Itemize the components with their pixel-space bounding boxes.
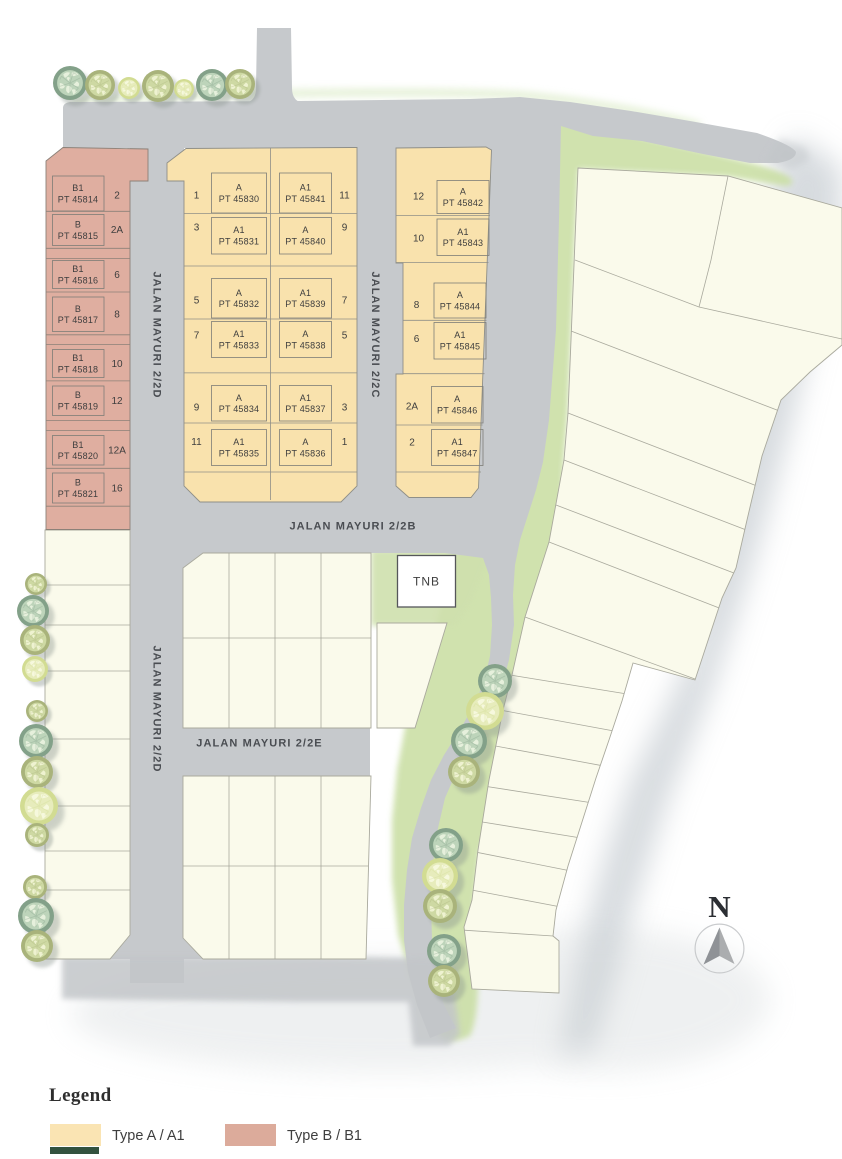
svg-text:B: B (75, 304, 81, 314)
svg-text:10: 10 (111, 359, 123, 370)
svg-text:10: 10 (413, 234, 425, 245)
svg-text:PT 45815: PT 45815 (58, 231, 98, 241)
svg-text:B1: B1 (72, 264, 83, 274)
svg-text:A1: A1 (457, 227, 468, 237)
svg-text:PT 45846: PT 45846 (437, 406, 477, 416)
svg-text:B1: B1 (72, 440, 83, 450)
svg-text:PT 45847: PT 45847 (437, 448, 477, 458)
svg-text:A1: A1 (300, 288, 311, 298)
svg-text:12: 12 (413, 192, 425, 203)
svg-text:2: 2 (114, 191, 120, 202)
svg-text:B: B (75, 478, 81, 488)
svg-text:PT 45814: PT 45814 (58, 194, 98, 204)
svg-text:3: 3 (194, 223, 200, 234)
svg-text:PT 45830: PT 45830 (219, 194, 259, 204)
svg-text:PT 45819: PT 45819 (58, 402, 98, 412)
svg-text:PT 45831: PT 45831 (219, 237, 259, 247)
svg-text:PT 45843: PT 45843 (443, 238, 483, 248)
svg-text:9: 9 (342, 223, 348, 234)
svg-text:A: A (302, 329, 308, 339)
svg-text:PT 45837: PT 45837 (285, 404, 325, 414)
svg-text:PT 45838: PT 45838 (285, 340, 325, 350)
svg-text:5: 5 (342, 331, 348, 342)
svg-text:Type B / B1: Type B / B1 (287, 1128, 362, 1144)
svg-text:2: 2 (409, 438, 415, 449)
svg-text:PT 45836: PT 45836 (285, 448, 325, 458)
svg-text:12: 12 (111, 396, 123, 407)
svg-text:JALAN MAYURI 2/2C: JALAN MAYURI 2/2C (369, 271, 381, 398)
svg-text:JALAN MAYURI 2/2D: JALAN MAYURI 2/2D (151, 645, 163, 772)
svg-text:5: 5 (194, 296, 200, 307)
svg-text:A: A (236, 288, 242, 298)
svg-text:JALAN MAYURI 2/2B: JALAN MAYURI 2/2B (289, 521, 416, 533)
svg-text:PT 45820: PT 45820 (58, 451, 98, 461)
svg-text:PT 45821: PT 45821 (58, 489, 98, 499)
svg-text:B: B (75, 220, 81, 230)
svg-text:A1: A1 (233, 225, 244, 235)
svg-text:2A: 2A (406, 401, 419, 412)
svg-text:A: A (460, 187, 466, 197)
svg-text:PT 45840: PT 45840 (285, 237, 325, 247)
svg-text:6: 6 (414, 334, 420, 345)
svg-text:7: 7 (194, 331, 200, 342)
svg-text:B1: B1 (72, 353, 83, 363)
svg-text:9: 9 (194, 403, 200, 414)
svg-text:8: 8 (114, 310, 120, 321)
svg-text:A: A (454, 394, 460, 404)
svg-text:Type A / A1: Type A / A1 (112, 1128, 185, 1144)
svg-text:Legend: Legend (49, 1085, 112, 1106)
svg-text:7: 7 (342, 296, 348, 307)
svg-text:A1: A1 (300, 393, 311, 403)
svg-text:A: A (236, 183, 242, 193)
svg-text:16: 16 (111, 484, 123, 495)
svg-text:PT 45839: PT 45839 (285, 299, 325, 309)
svg-text:PT 45841: PT 45841 (285, 194, 325, 204)
svg-text:A: A (457, 290, 463, 300)
svg-text:1: 1 (194, 191, 200, 202)
svg-text:JALAN MAYURI 2/2D: JALAN MAYURI 2/2D (151, 271, 163, 398)
svg-text:A: A (302, 225, 308, 235)
svg-text:TNB: TNB (413, 575, 440, 589)
svg-text:PT 45834: PT 45834 (219, 404, 259, 414)
svg-text:PT 45845: PT 45845 (440, 342, 480, 352)
svg-text:JALAN MAYURI 2/2E: JALAN MAYURI 2/2E (196, 738, 323, 750)
svg-text:3: 3 (342, 403, 348, 414)
svg-text:6: 6 (114, 270, 120, 281)
svg-text:N: N (708, 889, 730, 924)
svg-text:B1: B1 (72, 183, 83, 193)
svg-text:A1: A1 (454, 330, 465, 340)
svg-text:PT 45816: PT 45816 (58, 275, 98, 285)
svg-text:1: 1 (342, 437, 348, 448)
svg-text:2A: 2A (111, 225, 124, 236)
svg-text:PT 45832: PT 45832 (219, 299, 259, 309)
svg-text:PT 45833: PT 45833 (219, 340, 259, 350)
svg-text:8: 8 (414, 300, 420, 311)
svg-text:A: A (236, 393, 242, 403)
svg-text:A1: A1 (233, 437, 244, 447)
svg-text:PT 45842: PT 45842 (443, 198, 483, 208)
svg-text:12A: 12A (108, 446, 126, 457)
svg-text:11: 11 (339, 191, 350, 202)
svg-text:11: 11 (191, 437, 202, 448)
svg-text:B: B (75, 390, 81, 400)
svg-text:A1: A1 (300, 183, 311, 193)
svg-text:PT 45835: PT 45835 (219, 448, 259, 458)
svg-text:PT 45818: PT 45818 (58, 364, 98, 374)
svg-text:PT 45844: PT 45844 (440, 301, 480, 311)
svg-text:A1: A1 (452, 437, 463, 447)
svg-text:A1: A1 (233, 329, 244, 339)
svg-text:PT 45817: PT 45817 (58, 315, 98, 325)
svg-text:A: A (302, 437, 308, 447)
